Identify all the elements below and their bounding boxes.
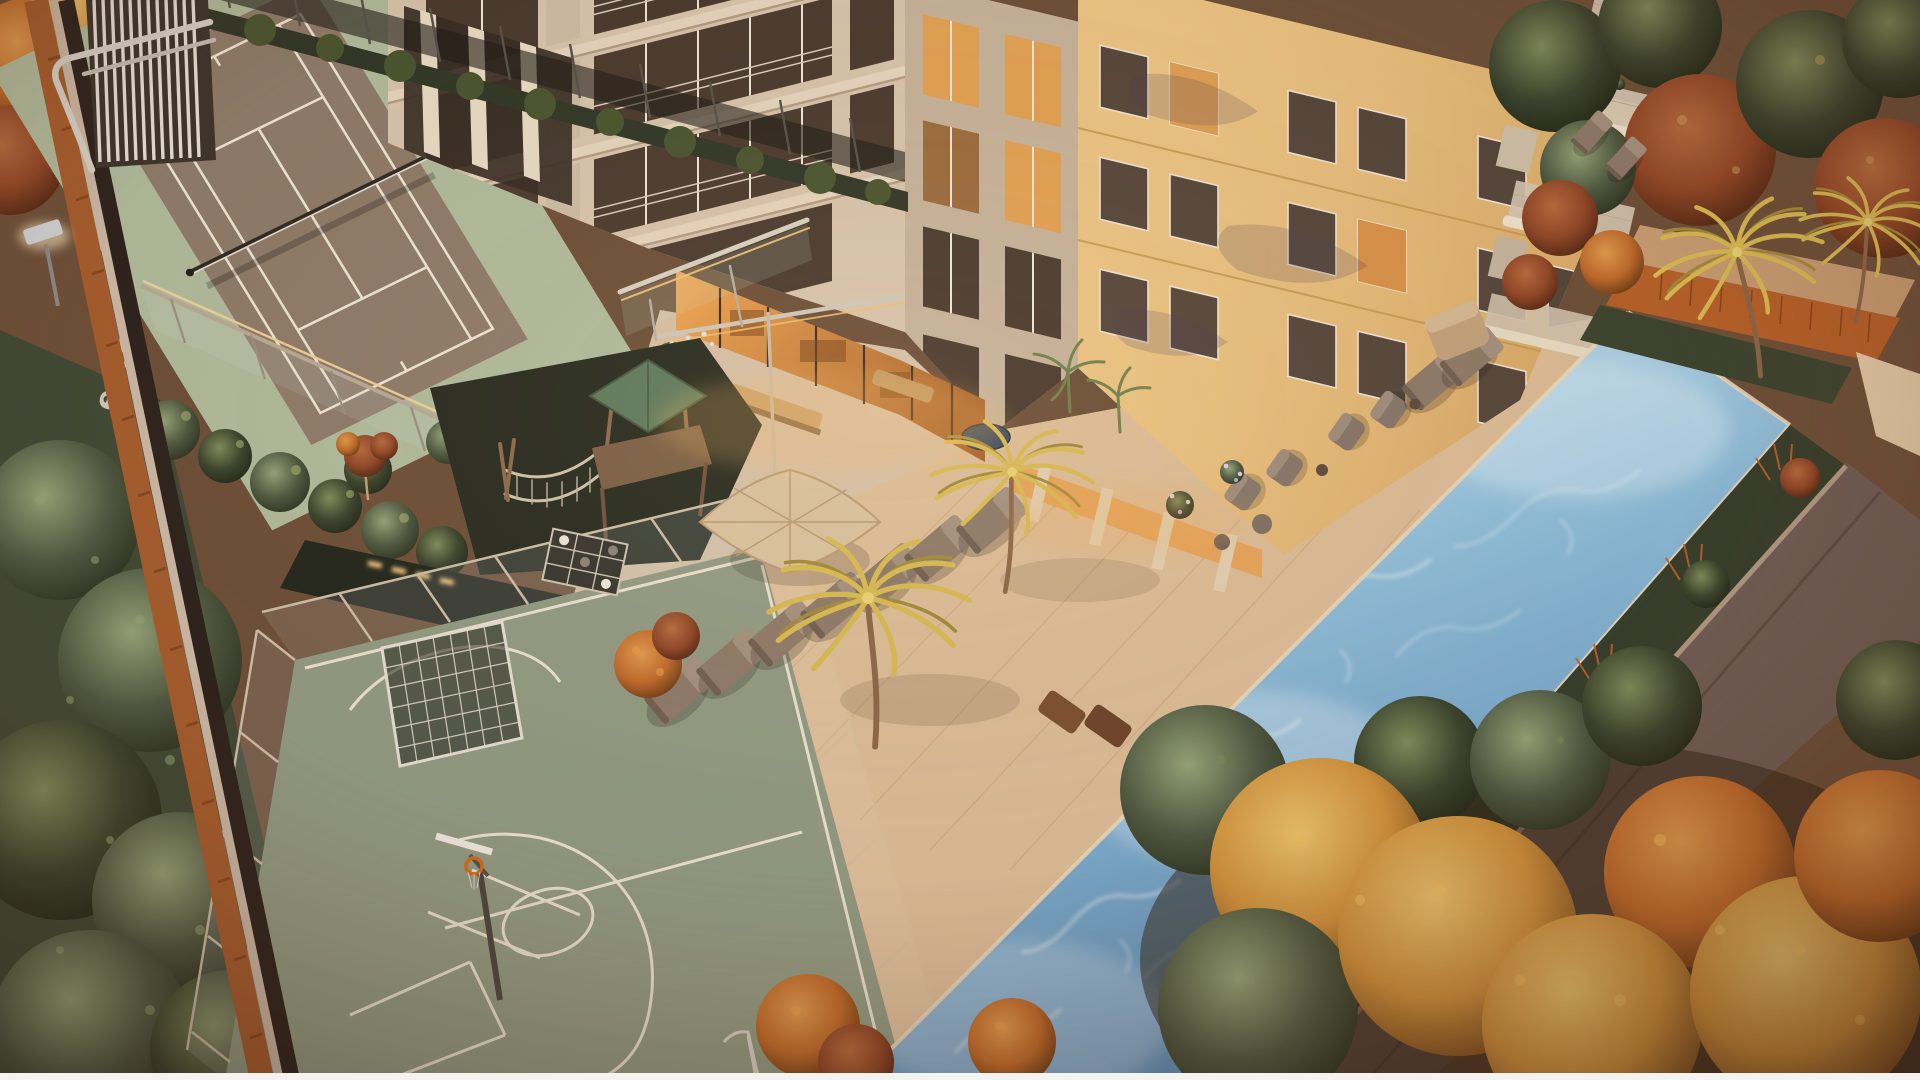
render-canvas: exto bbox=[0, 0, 1920, 1080]
bottom-letterbox bbox=[0, 1073, 1920, 1080]
render-scene: exto bbox=[0, 0, 1920, 1080]
vignette-overlay bbox=[0, 0, 1920, 1080]
